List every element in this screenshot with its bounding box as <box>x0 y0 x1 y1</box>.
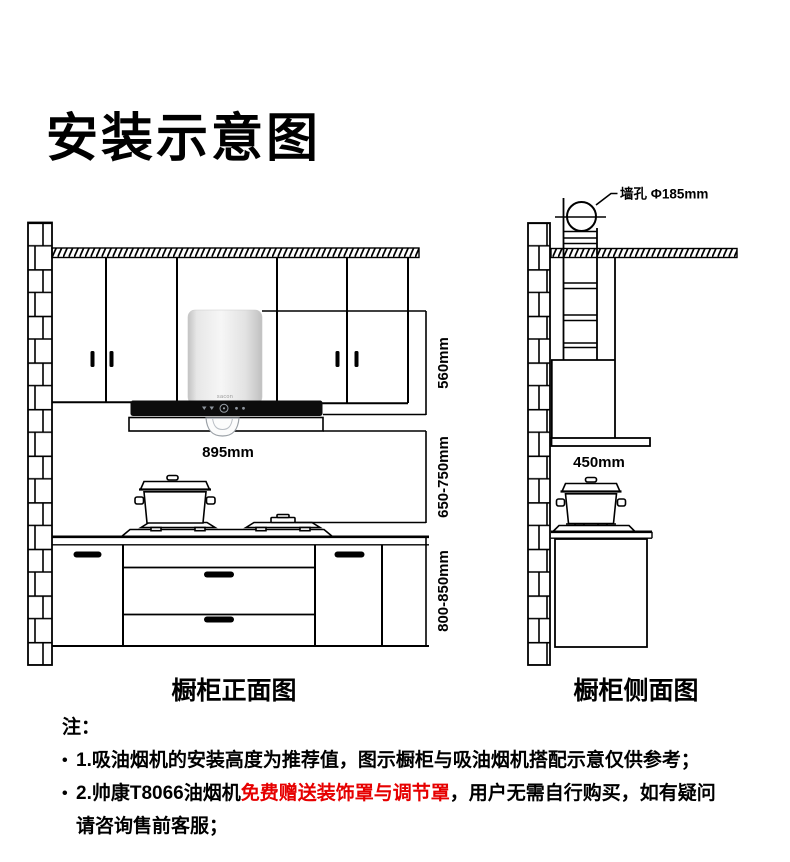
notes-heading: 注： <box>62 711 768 744</box>
dim-hood-to-cooktop: 650-750mm <box>435 436 452 518</box>
note-2-prefix: 2.帅康T8066油烟机 <box>76 783 241 804</box>
notes-section: 注： • 1.吸油烟机的安装高度为推荐值，图示橱柜与吸油烟机搭配示意仅供参考； … <box>62 711 768 843</box>
front-view-caption: 橱柜正面图 <box>171 677 296 705</box>
note-2-line2: 请咨询售前客服； <box>76 816 228 837</box>
side-brick-wall <box>528 223 550 665</box>
wall-hole-label: 墙孔 Φ185mm <box>620 186 708 202</box>
hood-control-panel <box>131 401 323 417</box>
side-base-cabinet <box>555 539 647 647</box>
front-ceiling-hatch <box>52 248 419 258</box>
hood-light-dome <box>206 418 239 436</box>
bullet-dot: • <box>62 777 76 843</box>
side-view-caption: 橱柜侧面图 <box>573 676 698 705</box>
front-stock-pot <box>135 476 215 524</box>
cabinet-side-view: 墙孔 Φ185mm 450mm <box>528 186 737 706</box>
note-2-highlight: 免费赠送装饰罩与调节罩 <box>241 783 450 804</box>
range-hood: sacon <box>129 310 323 436</box>
side-stock-pot <box>557 478 626 524</box>
note-2-suffix: ，用户无需自行购买，如有疑问 <box>450 783 716 804</box>
installation-diagram-page: 安装示意图 <box>0 0 790 862</box>
front-base-cabinet <box>52 545 429 646</box>
note-1-text: 1.吸油烟机的安装高度为推荐值，图示橱柜与吸油烟机搭配示意仅供参考； <box>76 744 768 777</box>
side-ceiling-hatch <box>551 249 737 258</box>
dim-counter-height: 800-850mm <box>435 550 452 632</box>
side-countertop <box>551 532 652 538</box>
dim-hood-depth: 450mm <box>573 454 625 471</box>
note-item-2: • 2.帅康T8066油烟机免费赠送装饰罩与调节罩，用户无需自行购买，如有疑问 … <box>62 777 768 843</box>
front-countertop <box>52 537 429 545</box>
front-dimension-lines <box>262 311 426 646</box>
side-hood-bottom-plate <box>552 438 651 446</box>
wall-hole-leader-line <box>596 194 618 206</box>
cabinet-front-view: sacon <box>28 223 452 706</box>
installation-diagram: sacon <box>0 0 790 710</box>
front-drawer-handles <box>74 552 365 623</box>
note-item-1: • 1.吸油烟机的安装高度为推荐值，图示橱柜与吸油烟机搭配示意仅供参考； <box>62 744 768 777</box>
side-cooktop <box>553 524 635 532</box>
bullet-dot: • <box>62 744 76 777</box>
hood-chimney <box>188 310 262 404</box>
dim-chimney-height: 560mm <box>435 337 452 389</box>
note-2-text: 2.帅康T8066油烟机免费赠送装饰罩与调节罩，用户无需自行购买，如有疑问 请咨… <box>76 777 768 843</box>
front-brick-wall <box>28 223 52 666</box>
side-hood-body <box>551 258 650 447</box>
hood-logo: sacon <box>217 394 233 400</box>
dim-hood-width: 895mm <box>202 444 254 461</box>
